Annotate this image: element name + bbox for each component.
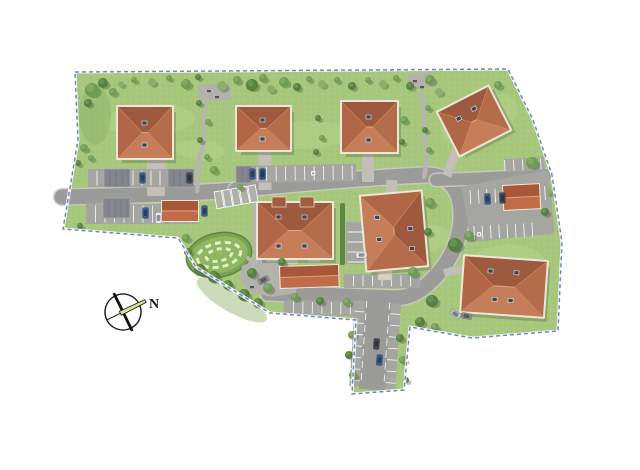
bench [207,90,211,92]
house [235,105,294,155]
garage-red-roof [502,183,541,211]
car [376,354,383,365]
car [202,206,208,217]
car [140,173,146,184]
car [356,252,367,258]
bench [250,286,254,288]
house [340,100,401,157]
bench [413,80,417,82]
car [143,208,149,219]
site-plan: N [0,0,640,470]
compass-north-label: N [149,297,159,312]
disabled-parking-icon [311,171,315,176]
site-plan-page: N [0,0,640,470]
garage-red-roof [279,264,340,289]
car [250,169,256,180]
bench [420,86,424,88]
house [459,254,551,322]
house [359,189,432,275]
compass [98,282,155,339]
car [373,338,380,349]
footpath [254,196,256,262]
car [260,169,266,180]
carport [103,198,130,218]
car [484,193,490,204]
car [187,173,193,184]
car [499,192,505,203]
carport [104,169,130,187]
garage-red-roof [161,200,199,222]
disabled-parking-icon [477,232,481,237]
house [256,197,336,263]
hedge [340,203,345,265]
compass-needle [119,299,146,315]
bench [215,96,219,98]
compass-rose [98,282,155,339]
house [116,105,176,163]
car [156,213,162,224]
